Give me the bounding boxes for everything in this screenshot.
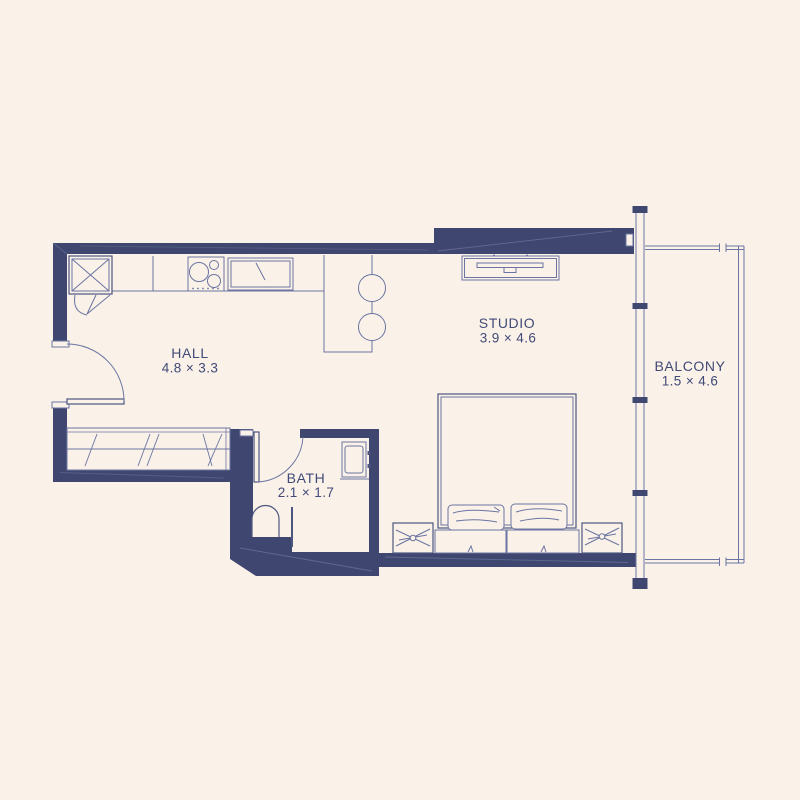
tv-console <box>462 255 559 281</box>
room-label-hall: HALL <box>171 345 208 361</box>
wall-left-upper <box>53 243 67 342</box>
room-dims-balcony: 1.5 × 4.6 <box>662 374 719 389</box>
nightstand-right <box>582 523 622 553</box>
room-label-studio: STUDIO <box>479 315 536 331</box>
wash-basin <box>340 442 371 479</box>
bed-headboard <box>507 530 579 553</box>
bar-stool <box>359 275 386 302</box>
mullion-transom <box>633 397 648 403</box>
tv-screen <box>477 263 543 268</box>
door-leaf <box>67 399 124 404</box>
floor-plan-canvas: HALL 4.8 × 3.3 STUDIO 3.9 × 4.6 BATH 2.1… <box>0 0 800 800</box>
mullion-top-cap <box>633 206 648 213</box>
bath-door-jamb <box>240 430 253 436</box>
mullion-transom <box>633 490 648 496</box>
bar-stool <box>359 314 386 341</box>
pillow <box>511 504 567 529</box>
mullion-bottom-cap <box>633 578 648 589</box>
floor-plan-drawing: HALL 4.8 × 3.3 STUDIO 3.9 × 4.6 BATH 2.1… <box>0 0 800 800</box>
wall-closet-bath <box>230 429 253 537</box>
pillow <box>448 505 504 530</box>
tv-stand <box>504 268 516 273</box>
toilet <box>252 506 279 537</box>
wall-left-lower <box>53 405 67 480</box>
railing-post <box>720 244 727 252</box>
mullion-transom <box>633 303 648 309</box>
railing-post <box>720 558 727 566</box>
room-dims-hall: 4.8 × 3.3 <box>162 361 219 376</box>
nightstand-left <box>393 523 433 553</box>
wall-bath-right <box>369 429 379 558</box>
kitchen-sink <box>228 258 293 290</box>
bed-headboard <box>435 530 506 553</box>
wall-top-left <box>53 243 434 254</box>
window-jamb-notch <box>626 234 633 246</box>
stove <box>188 257 224 291</box>
room-dims-bath: 2.1 × 1.7 <box>278 485 335 500</box>
door-leaf <box>254 432 259 482</box>
room-dims-studio: 3.9 × 4.6 <box>480 331 537 346</box>
wall-bath-top <box>300 429 379 438</box>
room-label-bath: BATH <box>287 470 326 486</box>
door-sill <box>52 341 69 347</box>
room-label-balcony: BALCONY <box>654 358 725 374</box>
wall-bottom-left <box>53 470 230 482</box>
